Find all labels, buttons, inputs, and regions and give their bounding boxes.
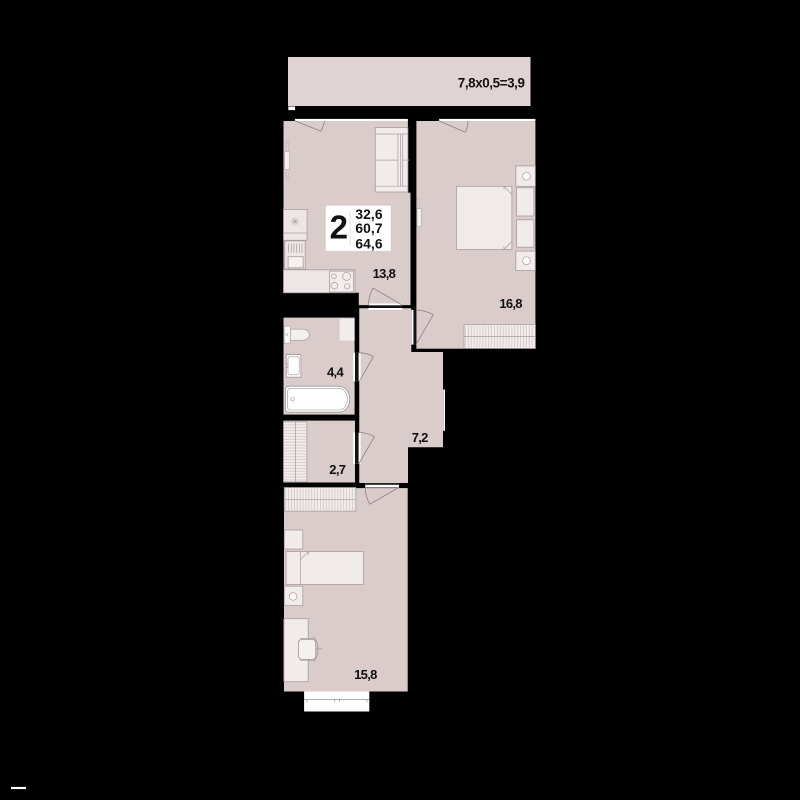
svg-text:64,6: 64,6 — [355, 236, 382, 251]
svg-text:32,6: 32,6 — [355, 207, 382, 222]
svg-text:16,8: 16,8 — [499, 296, 522, 311]
svg-text:2,7: 2,7 — [329, 462, 345, 477]
svg-text:7,8x0,5=3,9: 7,8x0,5=3,9 — [458, 75, 525, 90]
svg-text:4,4: 4,4 — [327, 365, 344, 380]
svg-text:7,2: 7,2 — [412, 430, 428, 445]
svg-text:15,8: 15,8 — [354, 667, 377, 682]
svg-text:60,7: 60,7 — [355, 221, 382, 236]
svg-text:2: 2 — [330, 208, 348, 245]
svg-text:13,8: 13,8 — [373, 266, 396, 281]
